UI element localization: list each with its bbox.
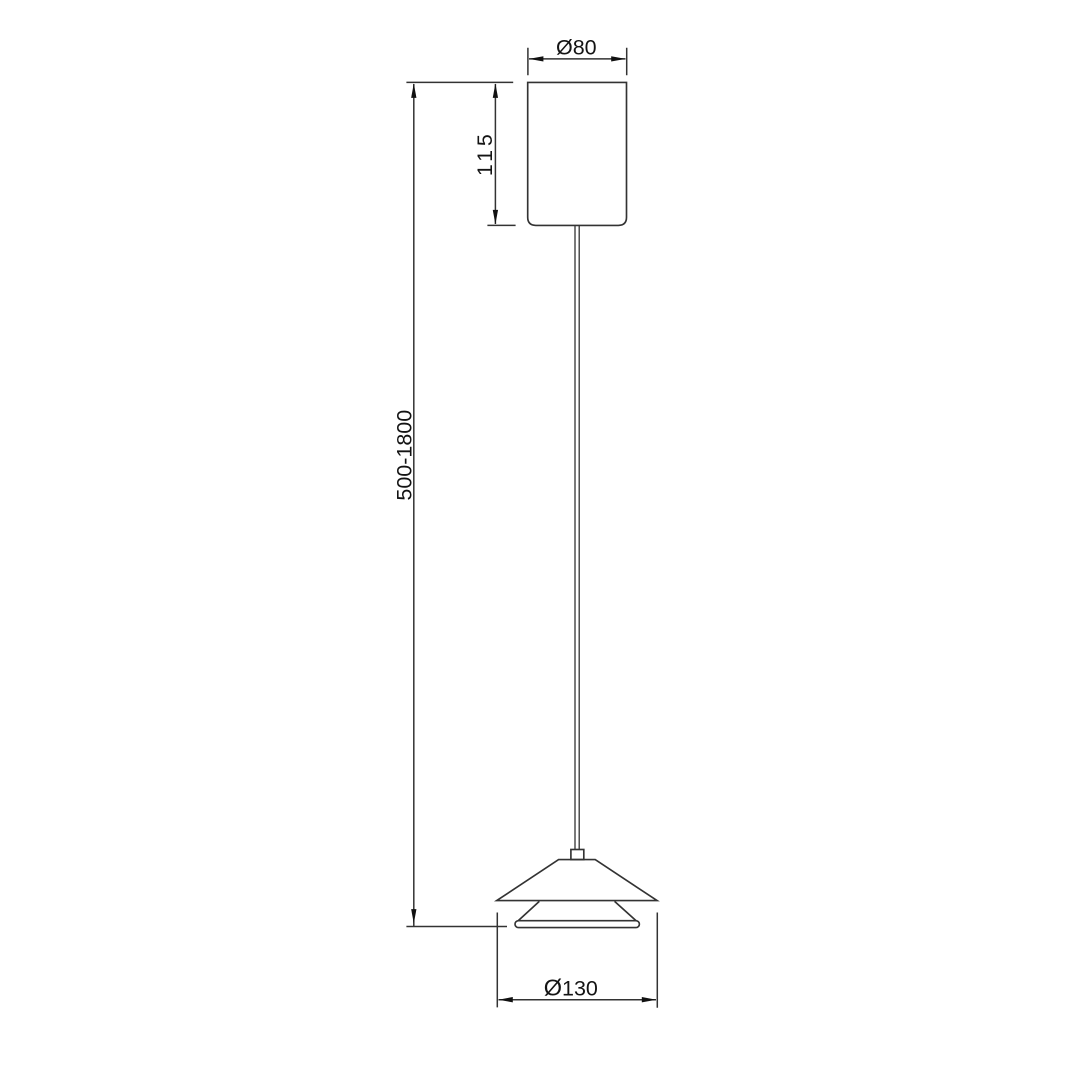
svg-text:115: 115 xyxy=(473,134,497,176)
svg-text:Ø80: Ø80 xyxy=(556,36,597,60)
svg-text:500-1800: 500-1800 xyxy=(393,410,417,501)
svg-text:Ø130: Ø130 xyxy=(544,975,598,1001)
